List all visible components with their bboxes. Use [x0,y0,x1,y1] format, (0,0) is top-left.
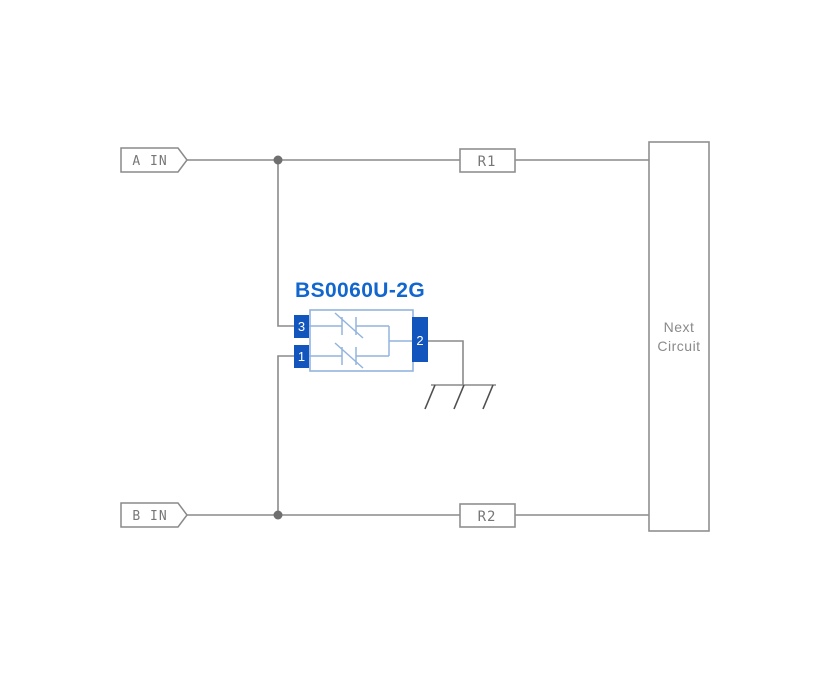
input-flag-a: A IN [121,148,187,172]
pin-2-label: 2 [416,333,423,348]
tvs-component: BS0060U-2G [294,279,428,371]
pin-3-label: 3 [298,319,305,334]
input-b-label: B IN [132,509,167,524]
junction-dot-b [274,511,283,520]
wire-b-to-pin1 [278,356,294,515]
component-part-label: BS0060U-2G [295,279,425,302]
pin-1-label: 1 [298,349,305,364]
net-b-wires [187,356,649,520]
next-circuit-label: Next Circuit [649,142,709,531]
ground-slash-1 [425,385,435,409]
resistor-r1: R1 [460,149,515,172]
ground-slash-2 [454,385,464,409]
resistor-r2-label: R2 [478,509,497,525]
ground-slash-3 [483,385,493,409]
junction-dot-a [274,156,283,165]
wire-a-to-pin3 [278,160,294,326]
wire-pin2-to-ground [428,341,463,385]
input-a-label: A IN [132,154,167,169]
resistor-r1-label: R1 [478,154,497,170]
schematic-page: A IN B IN R1 R2 BS0060U-2G [0,0,832,675]
input-flag-b: B IN [121,503,187,527]
chassis-ground-icon [425,341,496,409]
resistor-r2: R2 [460,504,515,527]
